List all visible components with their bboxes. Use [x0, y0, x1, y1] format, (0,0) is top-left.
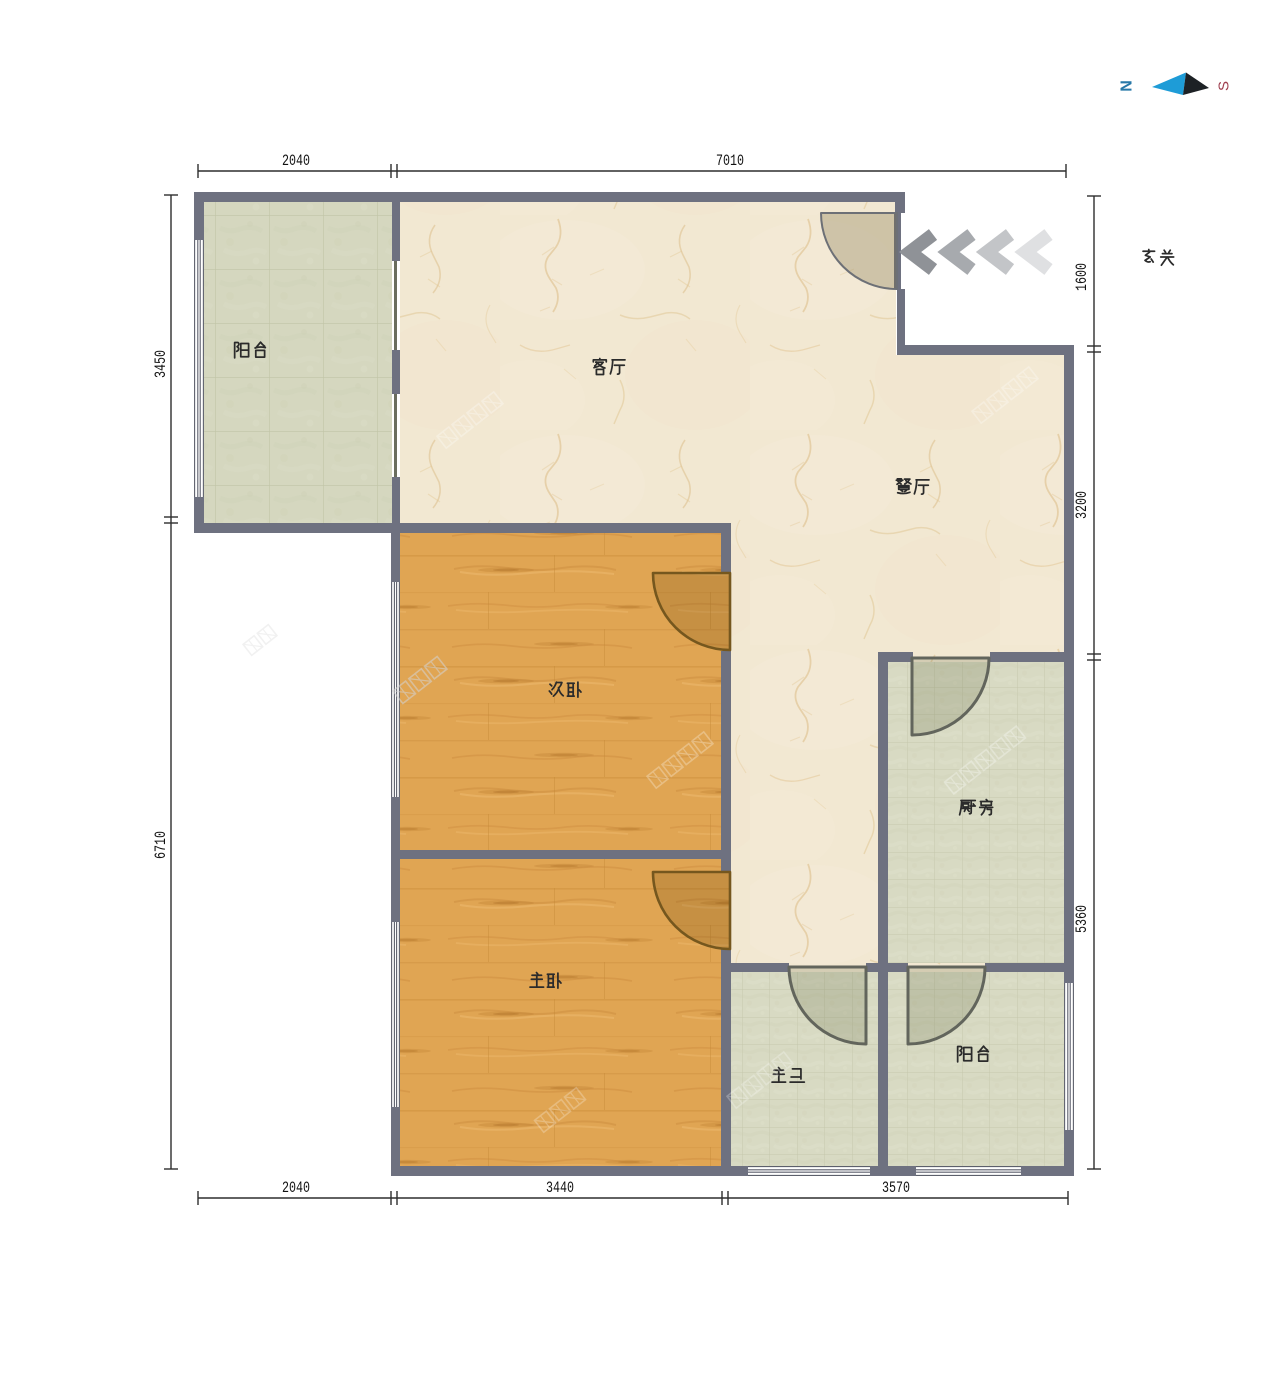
svg-text:2040: 2040: [282, 1179, 310, 1197]
svg-text:6710: 6710: [152, 831, 170, 859]
svg-text:7010: 7010: [716, 152, 744, 170]
svg-text:N: N: [1119, 80, 1136, 92]
svg-text:3440: 3440: [546, 1179, 574, 1197]
svg-text:3450: 3450: [152, 350, 170, 378]
svg-text:2040: 2040: [282, 152, 310, 170]
svg-text:5360: 5360: [1073, 905, 1091, 933]
svg-text:3200: 3200: [1073, 491, 1091, 519]
svg-text:3570: 3570: [882, 1179, 910, 1197]
svg-text:1600: 1600: [1073, 263, 1091, 291]
svg-text:S: S: [1216, 81, 1233, 91]
